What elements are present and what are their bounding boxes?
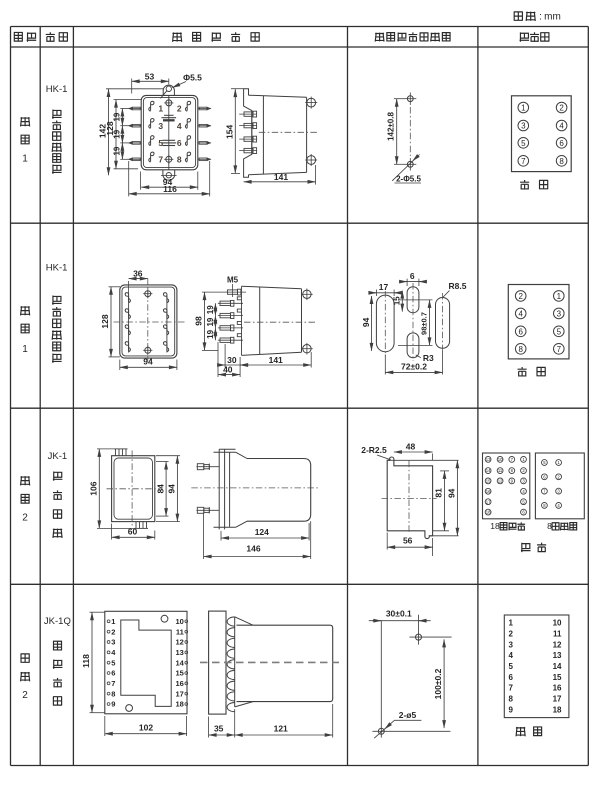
svg-text:17: 17 — [379, 282, 389, 292]
svg-text:19: 19 — [206, 317, 215, 326]
svg-text:4: 4 — [177, 121, 182, 131]
svg-text:4: 4 — [509, 651, 514, 660]
svg-text:7: 7 — [557, 345, 562, 354]
svg-text:2: 2 — [559, 104, 564, 113]
svg-text:11: 11 — [553, 630, 562, 639]
svg-text:8: 8 — [518, 345, 523, 354]
svg-text:11: 11 — [176, 627, 184, 636]
svg-text:1: 1 — [22, 154, 28, 165]
svg-text:3: 3 — [111, 638, 115, 647]
svg-text:15: 15 — [175, 669, 183, 678]
svg-text:2: 2 — [22, 513, 28, 524]
svg-text::: : — [539, 12, 542, 23]
svg-text:2: 2 — [177, 104, 182, 114]
svg-text:18: 18 — [486, 510, 491, 515]
svg-text:16: 16 — [486, 489, 491, 494]
svg-text:12: 12 — [498, 479, 503, 484]
svg-text:19: 19 — [113, 146, 122, 155]
svg-text:10: 10 — [498, 457, 503, 462]
svg-text:128: 128 — [100, 314, 110, 328]
svg-text:8: 8 — [177, 155, 182, 165]
svg-text:2: 2 — [111, 627, 115, 636]
svg-text:Φ5.5: Φ5.5 — [183, 73, 202, 83]
svg-text:18: 18 — [175, 700, 183, 709]
svg-text:JK-1: JK-1 — [48, 451, 68, 462]
svg-text:R8.5: R8.5 — [449, 281, 467, 291]
svg-text:6: 6 — [509, 673, 514, 682]
svg-text:116: 116 — [163, 184, 177, 194]
svg-text:7: 7 — [521, 157, 526, 166]
svg-text:17: 17 — [175, 689, 183, 698]
svg-text:17: 17 — [553, 695, 562, 704]
svg-text:94: 94 — [361, 317, 371, 327]
svg-text:2: 2 — [22, 690, 28, 701]
svg-text:11: 11 — [498, 468, 503, 473]
svg-text:1: 1 — [557, 292, 562, 301]
svg-text:3: 3 — [509, 640, 514, 649]
svg-text:13: 13 — [486, 457, 491, 462]
svg-text:154: 154 — [225, 125, 235, 139]
svg-text:2-ø5: 2-ø5 — [399, 710, 417, 720]
svg-text:5: 5 — [509, 662, 514, 671]
svg-text:2-R2.5: 2-R2.5 — [361, 445, 387, 455]
svg-text:60: 60 — [128, 527, 138, 537]
svg-text:141: 141 — [274, 172, 288, 182]
svg-text:M5: M5 — [227, 276, 239, 285]
svg-text:7: 7 — [111, 679, 115, 688]
svg-text:14: 14 — [175, 658, 184, 667]
svg-text:17: 17 — [486, 499, 491, 504]
svg-text:2-Φ5.5: 2-Φ5.5 — [396, 175, 421, 184]
svg-text:3: 3 — [557, 309, 562, 318]
svg-text:12: 12 — [175, 638, 183, 647]
svg-text:1: 1 — [158, 104, 163, 114]
svg-text:30±0.1: 30±0.1 — [386, 609, 412, 619]
svg-text:19: 19 — [206, 305, 215, 314]
svg-text:18: 18 — [490, 521, 500, 531]
svg-text:JK-1Q: JK-1Q — [44, 616, 71, 627]
svg-text:146: 146 — [246, 544, 260, 554]
svg-text:13: 13 — [175, 648, 183, 657]
svg-text:5: 5 — [111, 658, 115, 667]
svg-text:141: 141 — [269, 355, 283, 365]
svg-text:19: 19 — [113, 129, 122, 138]
svg-text:6: 6 — [111, 669, 115, 678]
svg-text:2: 2 — [518, 292, 523, 301]
svg-text:84: 84 — [155, 484, 165, 494]
svg-text:5: 5 — [521, 139, 526, 148]
svg-text:98: 98 — [193, 316, 203, 326]
svg-text:94: 94 — [167, 484, 177, 494]
svg-text:15: 15 — [553, 673, 562, 682]
svg-text:mm: mm — [544, 12, 561, 23]
svg-text:48: 48 — [406, 441, 416, 451]
svg-text:5: 5 — [557, 327, 562, 336]
svg-text:8: 8 — [509, 695, 514, 704]
svg-text:53: 53 — [145, 71, 155, 81]
svg-text:14: 14 — [553, 662, 562, 671]
svg-text:HK-1: HK-1 — [46, 263, 68, 274]
svg-text:2: 2 — [509, 630, 514, 639]
svg-text:10: 10 — [553, 619, 562, 628]
svg-text:19: 19 — [206, 329, 215, 338]
svg-text:6: 6 — [177, 138, 182, 148]
svg-text:4: 4 — [559, 122, 564, 131]
svg-text:HK-1: HK-1 — [46, 84, 68, 95]
svg-text:7: 7 — [158, 155, 163, 165]
svg-text:56: 56 — [403, 536, 413, 546]
svg-text:1: 1 — [22, 344, 28, 355]
svg-text:1: 1 — [111, 617, 115, 626]
svg-text:121: 121 — [274, 724, 288, 734]
svg-text:118: 118 — [81, 654, 91, 668]
svg-text:36: 36 — [133, 268, 143, 278]
svg-text:6: 6 — [559, 139, 564, 148]
svg-text:8: 8 — [111, 689, 115, 698]
svg-text:15: 15 — [486, 479, 491, 484]
svg-text:94: 94 — [143, 356, 153, 366]
svg-text:6: 6 — [518, 327, 523, 336]
svg-text:72±0.2: 72±0.2 — [401, 362, 427, 372]
svg-text:3: 3 — [521, 122, 526, 131]
svg-text:40: 40 — [223, 364, 233, 374]
svg-text:102: 102 — [139, 723, 153, 733]
svg-text:7: 7 — [509, 684, 514, 693]
svg-text:10: 10 — [175, 617, 183, 626]
svg-text:14: 14 — [486, 468, 491, 473]
svg-text:9: 9 — [111, 700, 115, 709]
svg-text:98±0.7: 98±0.7 — [419, 312, 428, 335]
svg-text:100±0.2: 100±0.2 — [433, 668, 443, 699]
svg-text:15: 15 — [393, 296, 402, 305]
svg-text:1: 1 — [509, 619, 514, 628]
svg-text:6: 6 — [410, 271, 415, 281]
svg-text:16: 16 — [553, 684, 562, 693]
svg-text:4: 4 — [518, 309, 523, 318]
svg-text:8: 8 — [547, 521, 552, 531]
svg-text:16: 16 — [175, 679, 183, 688]
svg-text:1: 1 — [521, 104, 526, 113]
svg-text:94: 94 — [447, 488, 457, 498]
svg-text:18: 18 — [553, 705, 562, 714]
svg-text:35: 35 — [214, 724, 224, 734]
svg-text:142±0.8: 142±0.8 — [386, 112, 395, 141]
svg-text:124: 124 — [255, 527, 269, 537]
svg-text:12: 12 — [553, 640, 562, 649]
svg-text:8: 8 — [559, 157, 564, 166]
svg-text:3: 3 — [158, 121, 163, 131]
svg-text:13: 13 — [553, 651, 562, 660]
svg-text:19: 19 — [113, 112, 122, 121]
svg-text:81: 81 — [434, 488, 444, 498]
svg-text:106: 106 — [88, 481, 98, 495]
svg-text:9: 9 — [509, 705, 514, 714]
